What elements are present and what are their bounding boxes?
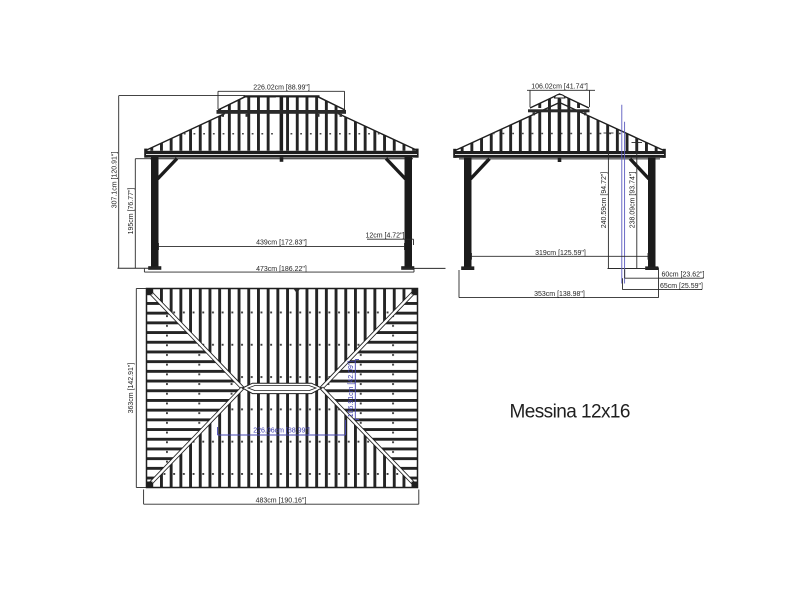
svg-text:240.59cm [94.72"]: 240.59cm [94.72"] xyxy=(601,172,608,229)
svg-text:106.02cm [41.74"]: 106.02cm [41.74"] xyxy=(531,84,588,91)
svg-text:473cm [186.22"]: 473cm [186.22"] xyxy=(256,266,307,273)
svg-text:307.1cm [120.91"]: 307.1cm [120.91"] xyxy=(111,152,118,209)
svg-text:353cm [138.98"]: 353cm [138.98"] xyxy=(534,291,585,298)
svg-text:65cm [25.59"]: 65cm [25.59"] xyxy=(660,283,703,290)
svg-text:226.06cm [88.99"]: 226.06cm [88.99"] xyxy=(253,428,310,435)
svg-text:226.02cm [88.99"]: 226.02cm [88.99"] xyxy=(253,85,310,92)
svg-text:60cm [23.62"]: 60cm [23.62"] xyxy=(662,272,705,279)
svg-text:238.09cm [93.74"]: 238.09cm [93.74"] xyxy=(629,172,636,229)
svg-text:439cm [172.83"]: 439cm [172.83"] xyxy=(256,240,307,247)
svg-text:12cm [4.72"]: 12cm [4.72"] xyxy=(365,233,404,240)
svg-text:195cm [76.77"]: 195cm [76.77"] xyxy=(128,188,135,235)
svg-text:483cm [190.16"]: 483cm [190.16"] xyxy=(256,497,307,504)
svg-text:319cm [125.59"]: 319cm [125.59"] xyxy=(535,250,586,257)
svg-text:106.91cm [42.09"]: 106.91cm [42.09"] xyxy=(348,361,355,418)
svg-text:363cm [142.91"]: 363cm [142.91"] xyxy=(128,363,135,414)
svg-text:Messina 12x16: Messina 12x16 xyxy=(510,402,631,423)
